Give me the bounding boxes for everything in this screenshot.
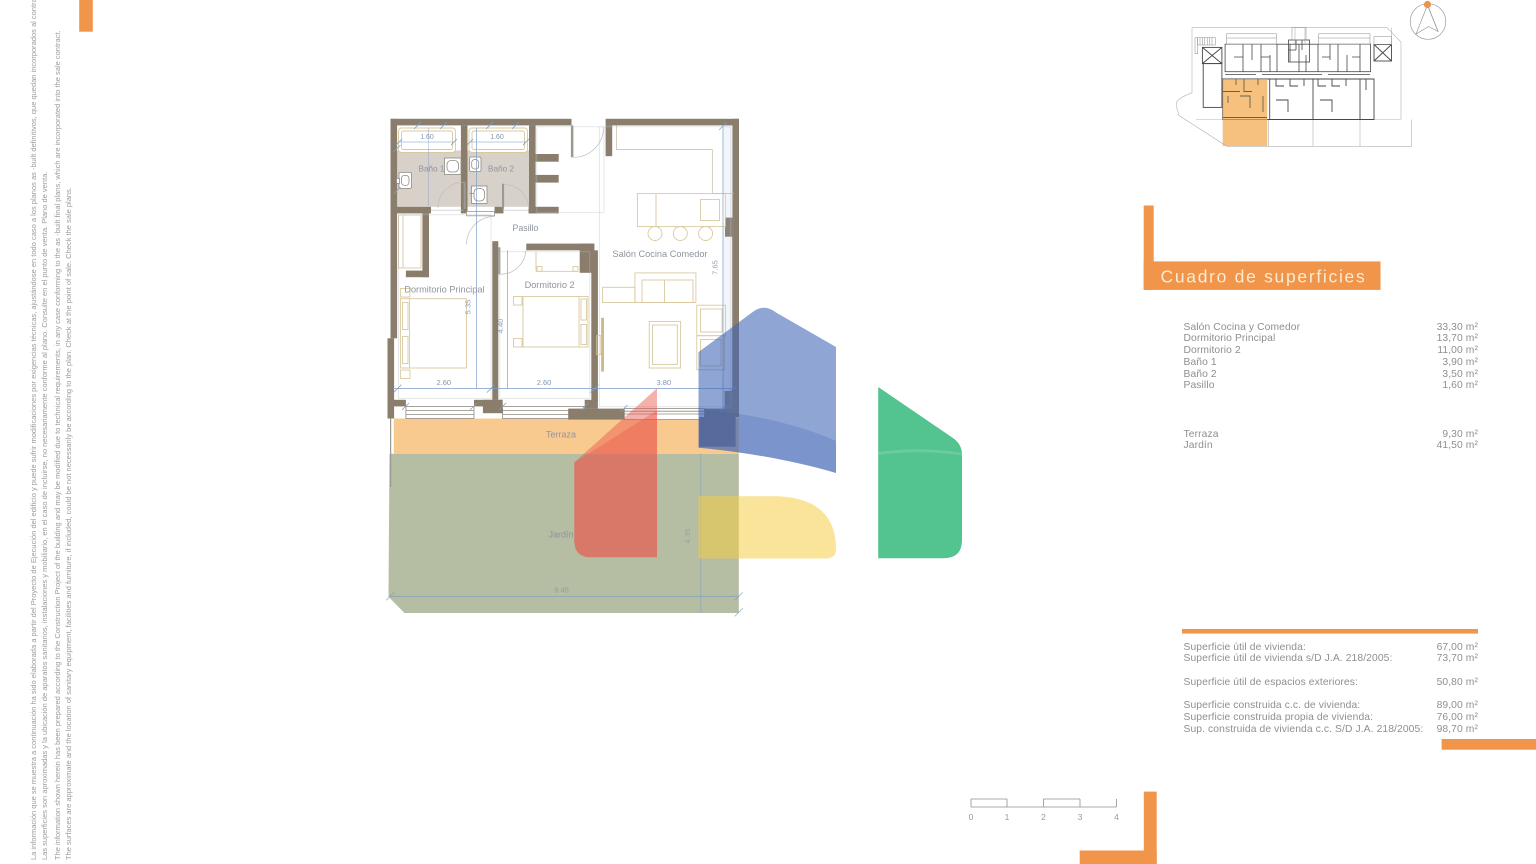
svg-text:Salón Cocina Comedor: Salón Cocina Comedor — [613, 249, 708, 259]
svg-text:Terraza: Terraza — [546, 430, 576, 440]
svg-text:3: 3 — [1078, 812, 1083, 822]
svg-text:Pasillo: Pasillo — [513, 223, 539, 233]
svg-text:Jardín: Jardín — [548, 530, 573, 540]
svg-text:1: 1 — [1005, 812, 1010, 822]
svg-text:4: 4 — [1114, 812, 1119, 822]
svg-text:3.80: 3.80 — [656, 378, 671, 387]
svg-text:0: 0 — [969, 812, 974, 822]
svg-text:Baño 1: Baño 1 — [419, 165, 445, 174]
svg-text:La información que se muestra: La información que se muestra a continua… — [29, 0, 38, 860]
svg-text:4.40: 4.40 — [496, 319, 505, 334]
svg-text:The information shown herein h: The information shown herein has been pr… — [53, 30, 62, 860]
svg-text:Dormitorio Principal: Dormitorio Principal — [404, 285, 484, 295]
svg-text:The surfaces are approximate a: The surfaces are approximate and the loc… — [64, 187, 73, 860]
svg-text:9.45: 9.45 — [554, 586, 569, 595]
svg-text:2.60: 2.60 — [436, 378, 451, 387]
svg-text:Cuadro de superficies: Cuadro de superficies — [1161, 267, 1367, 287]
svg-text:1.60: 1.60 — [490, 134, 504, 141]
svg-text:4.35: 4.35 — [683, 529, 692, 544]
svg-text:2: 2 — [1041, 812, 1046, 822]
svg-text:Baño 2: Baño 2 — [488, 165, 514, 174]
svg-text:7.65: 7.65 — [711, 260, 720, 275]
svg-text:5.35: 5.35 — [464, 300, 473, 315]
svg-text:Dormitorio 2: Dormitorio 2 — [525, 280, 575, 290]
svg-text:1.60: 1.60 — [420, 134, 434, 141]
svg-text:Las superficies son aproximada: Las superficies son aproximadas y la ubi… — [40, 172, 49, 860]
svg-text:2.60: 2.60 — [537, 378, 552, 387]
